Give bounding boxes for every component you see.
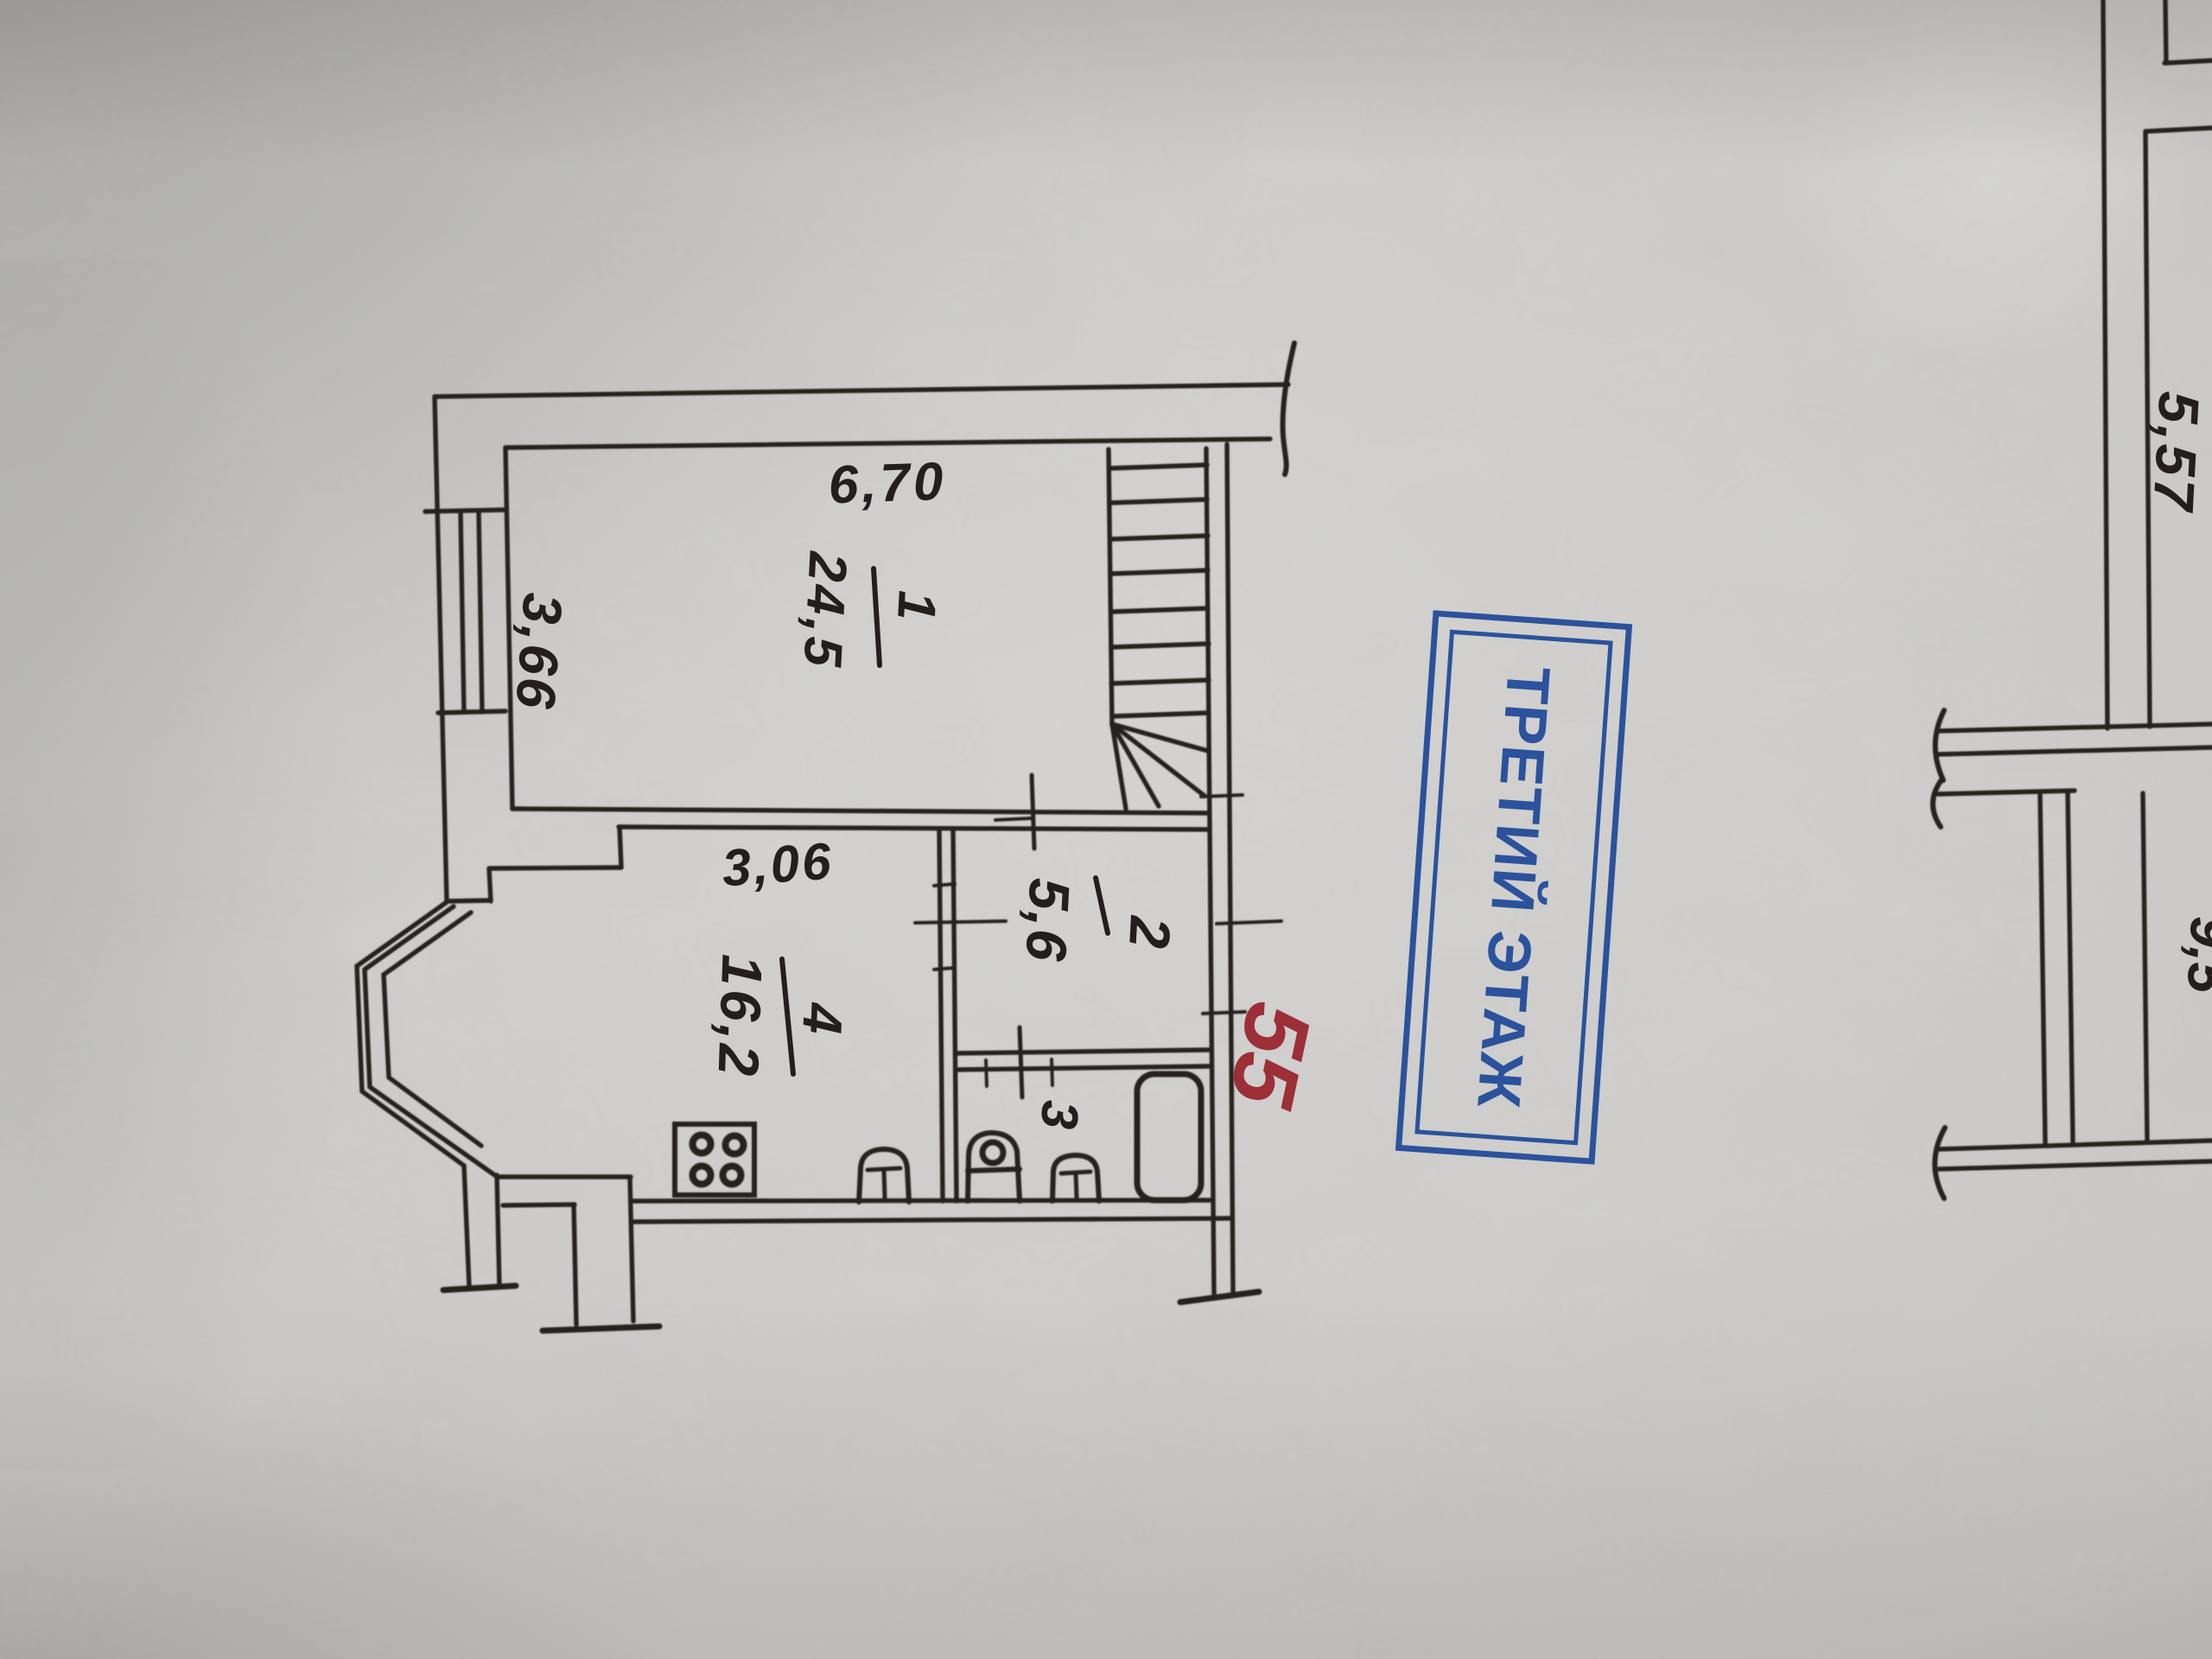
svg-text:3: 3: [1030, 1099, 1090, 1131]
svg-text:2: 2: [1117, 913, 1183, 950]
svg-text:24,5: 24,5: [791, 550, 857, 671]
svg-text:5,57: 5,57: [2141, 390, 2211, 514]
svg-text:6,70: 6,70: [828, 452, 948, 516]
svg-text:3,66: 3,66: [504, 591, 574, 713]
svg-text:1: 1: [886, 589, 947, 622]
svg-text:16,2: 16,2: [706, 953, 774, 1080]
svg-text:3,06: 3,06: [720, 832, 835, 898]
svg-text:9,5: 9,5: [2176, 915, 2212, 996]
svg-text:4: 4: [791, 1001, 854, 1035]
svg-text:5,6: 5,6: [1014, 876, 1082, 963]
